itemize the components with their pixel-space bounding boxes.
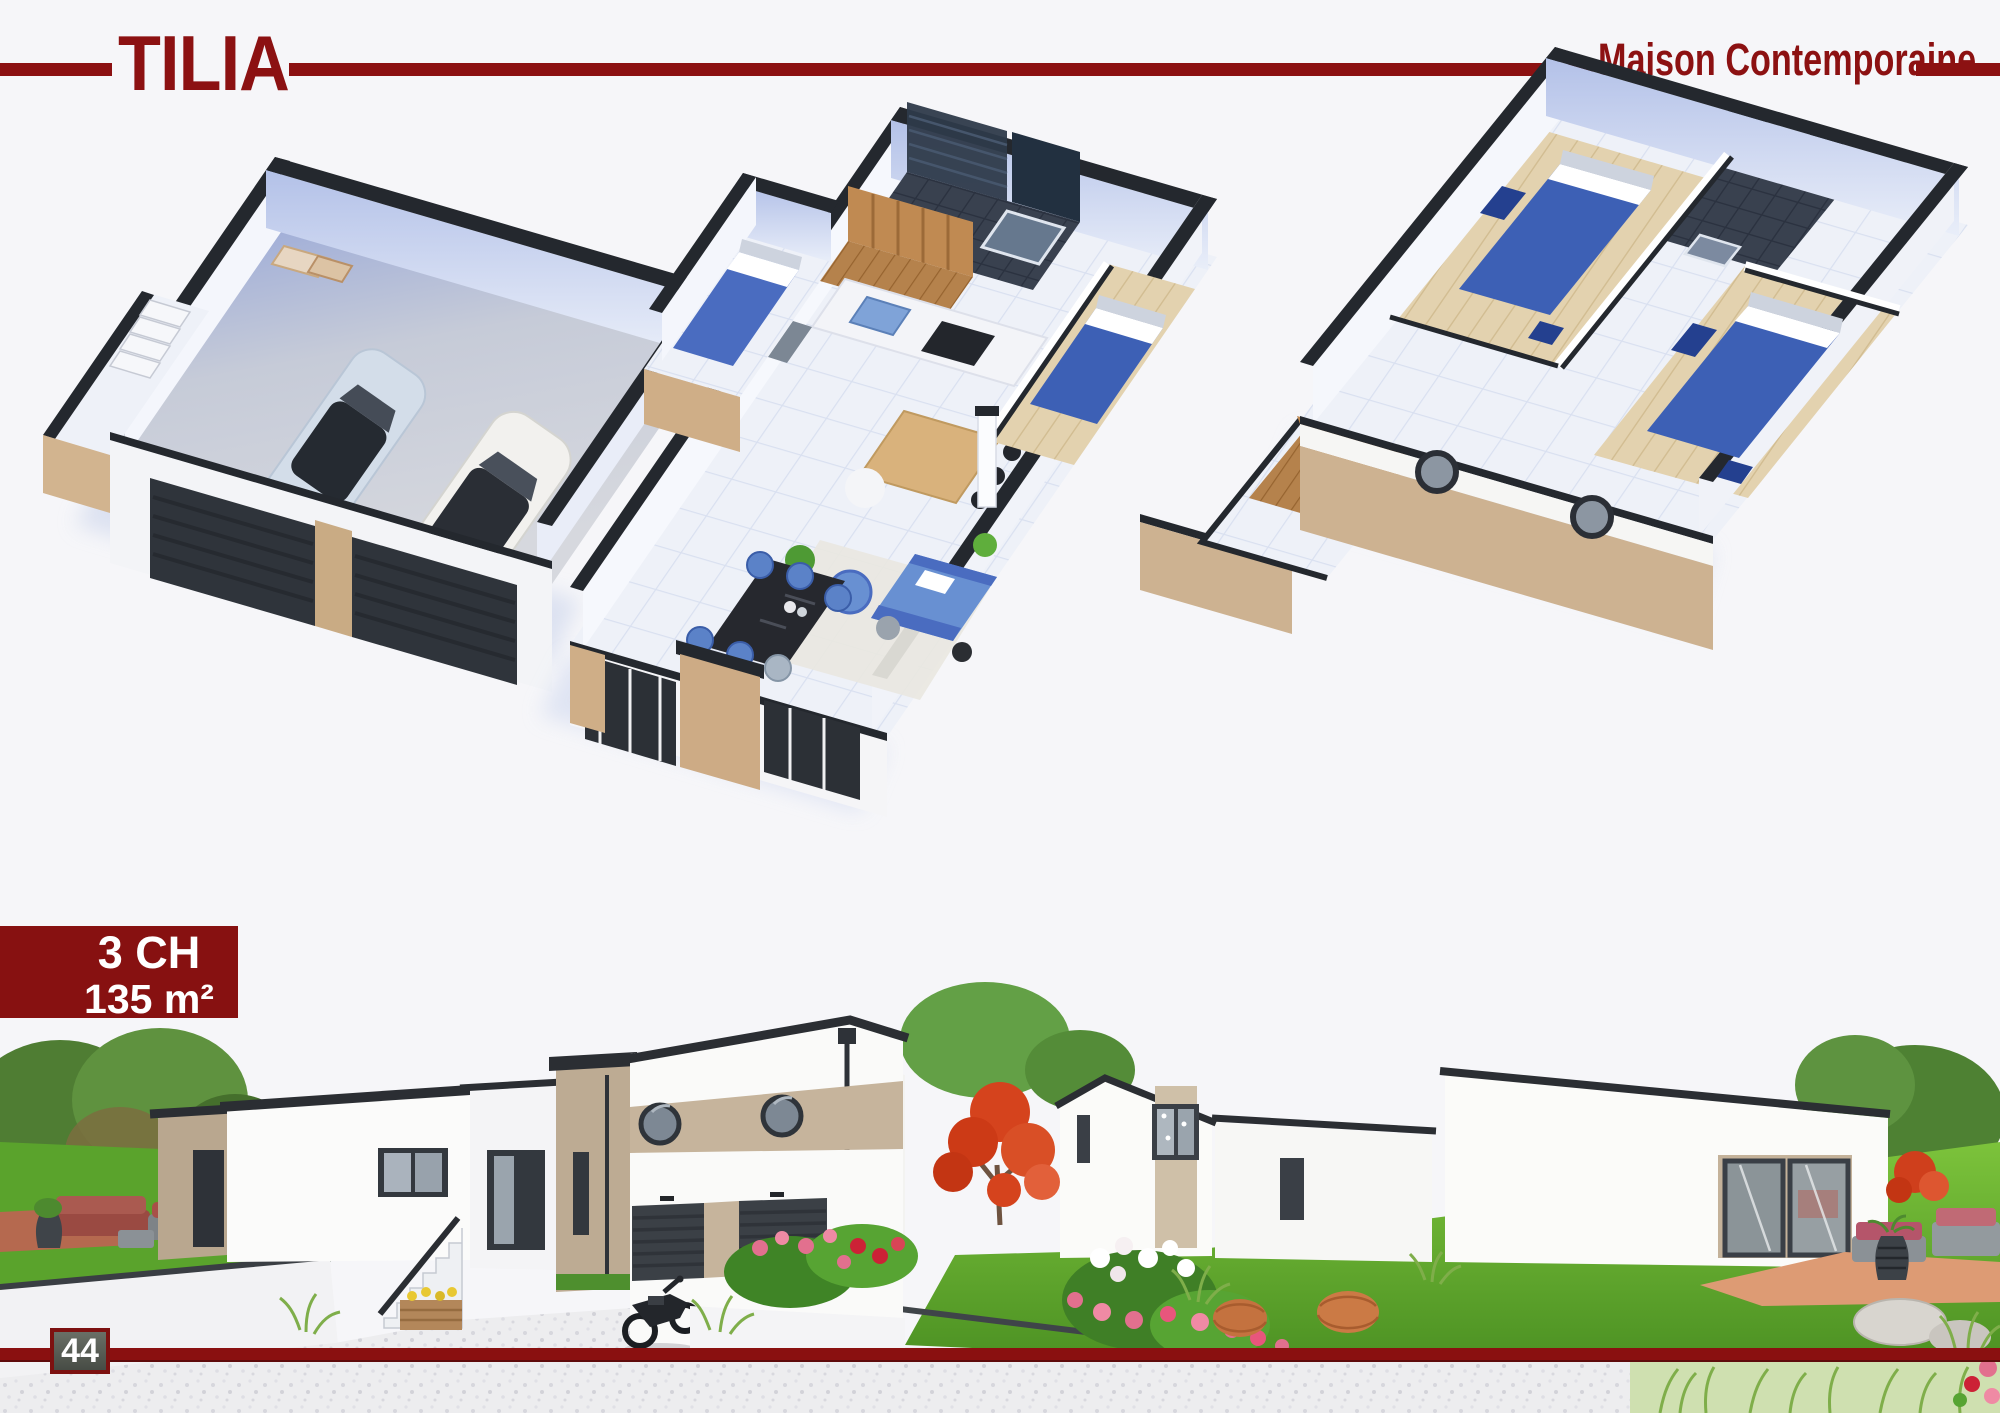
pouf-icon	[1317, 1291, 1379, 1333]
brochure-page: TILIA Maison Contemporaine	[0, 0, 2000, 1413]
plans-and-render-illustration	[0, 0, 2000, 1413]
footer-rule	[0, 1348, 2000, 1362]
porthole-window-icon	[641, 1105, 679, 1143]
garage-door-icon	[632, 1196, 704, 1281]
pouf-icon	[1213, 1299, 1267, 1337]
pouf	[876, 616, 900, 640]
living-floorplan	[540, 102, 1217, 817]
column	[978, 412, 996, 507]
plant-icon	[973, 533, 997, 557]
badge-area: 135 m²	[60, 978, 238, 1020]
spec-badge: 3 CH 135 m²	[0, 926, 238, 1018]
porthole-window-icon	[1418, 453, 1456, 491]
window-icon	[378, 1148, 448, 1197]
window-icon	[1152, 1104, 1199, 1160]
porthole-window-icon	[1573, 498, 1611, 536]
badge-bedrooms: 3 CH	[60, 928, 238, 978]
red-maple-icon	[933, 1082, 1060, 1225]
page-number: 44	[50, 1328, 110, 1374]
sliding-doors	[1718, 1155, 1852, 1258]
bedrooms-floorplan	[1202, 47, 1968, 650]
porthole-window-icon	[763, 1097, 801, 1135]
side-table	[952, 642, 972, 662]
window-icon	[1280, 1158, 1304, 1220]
